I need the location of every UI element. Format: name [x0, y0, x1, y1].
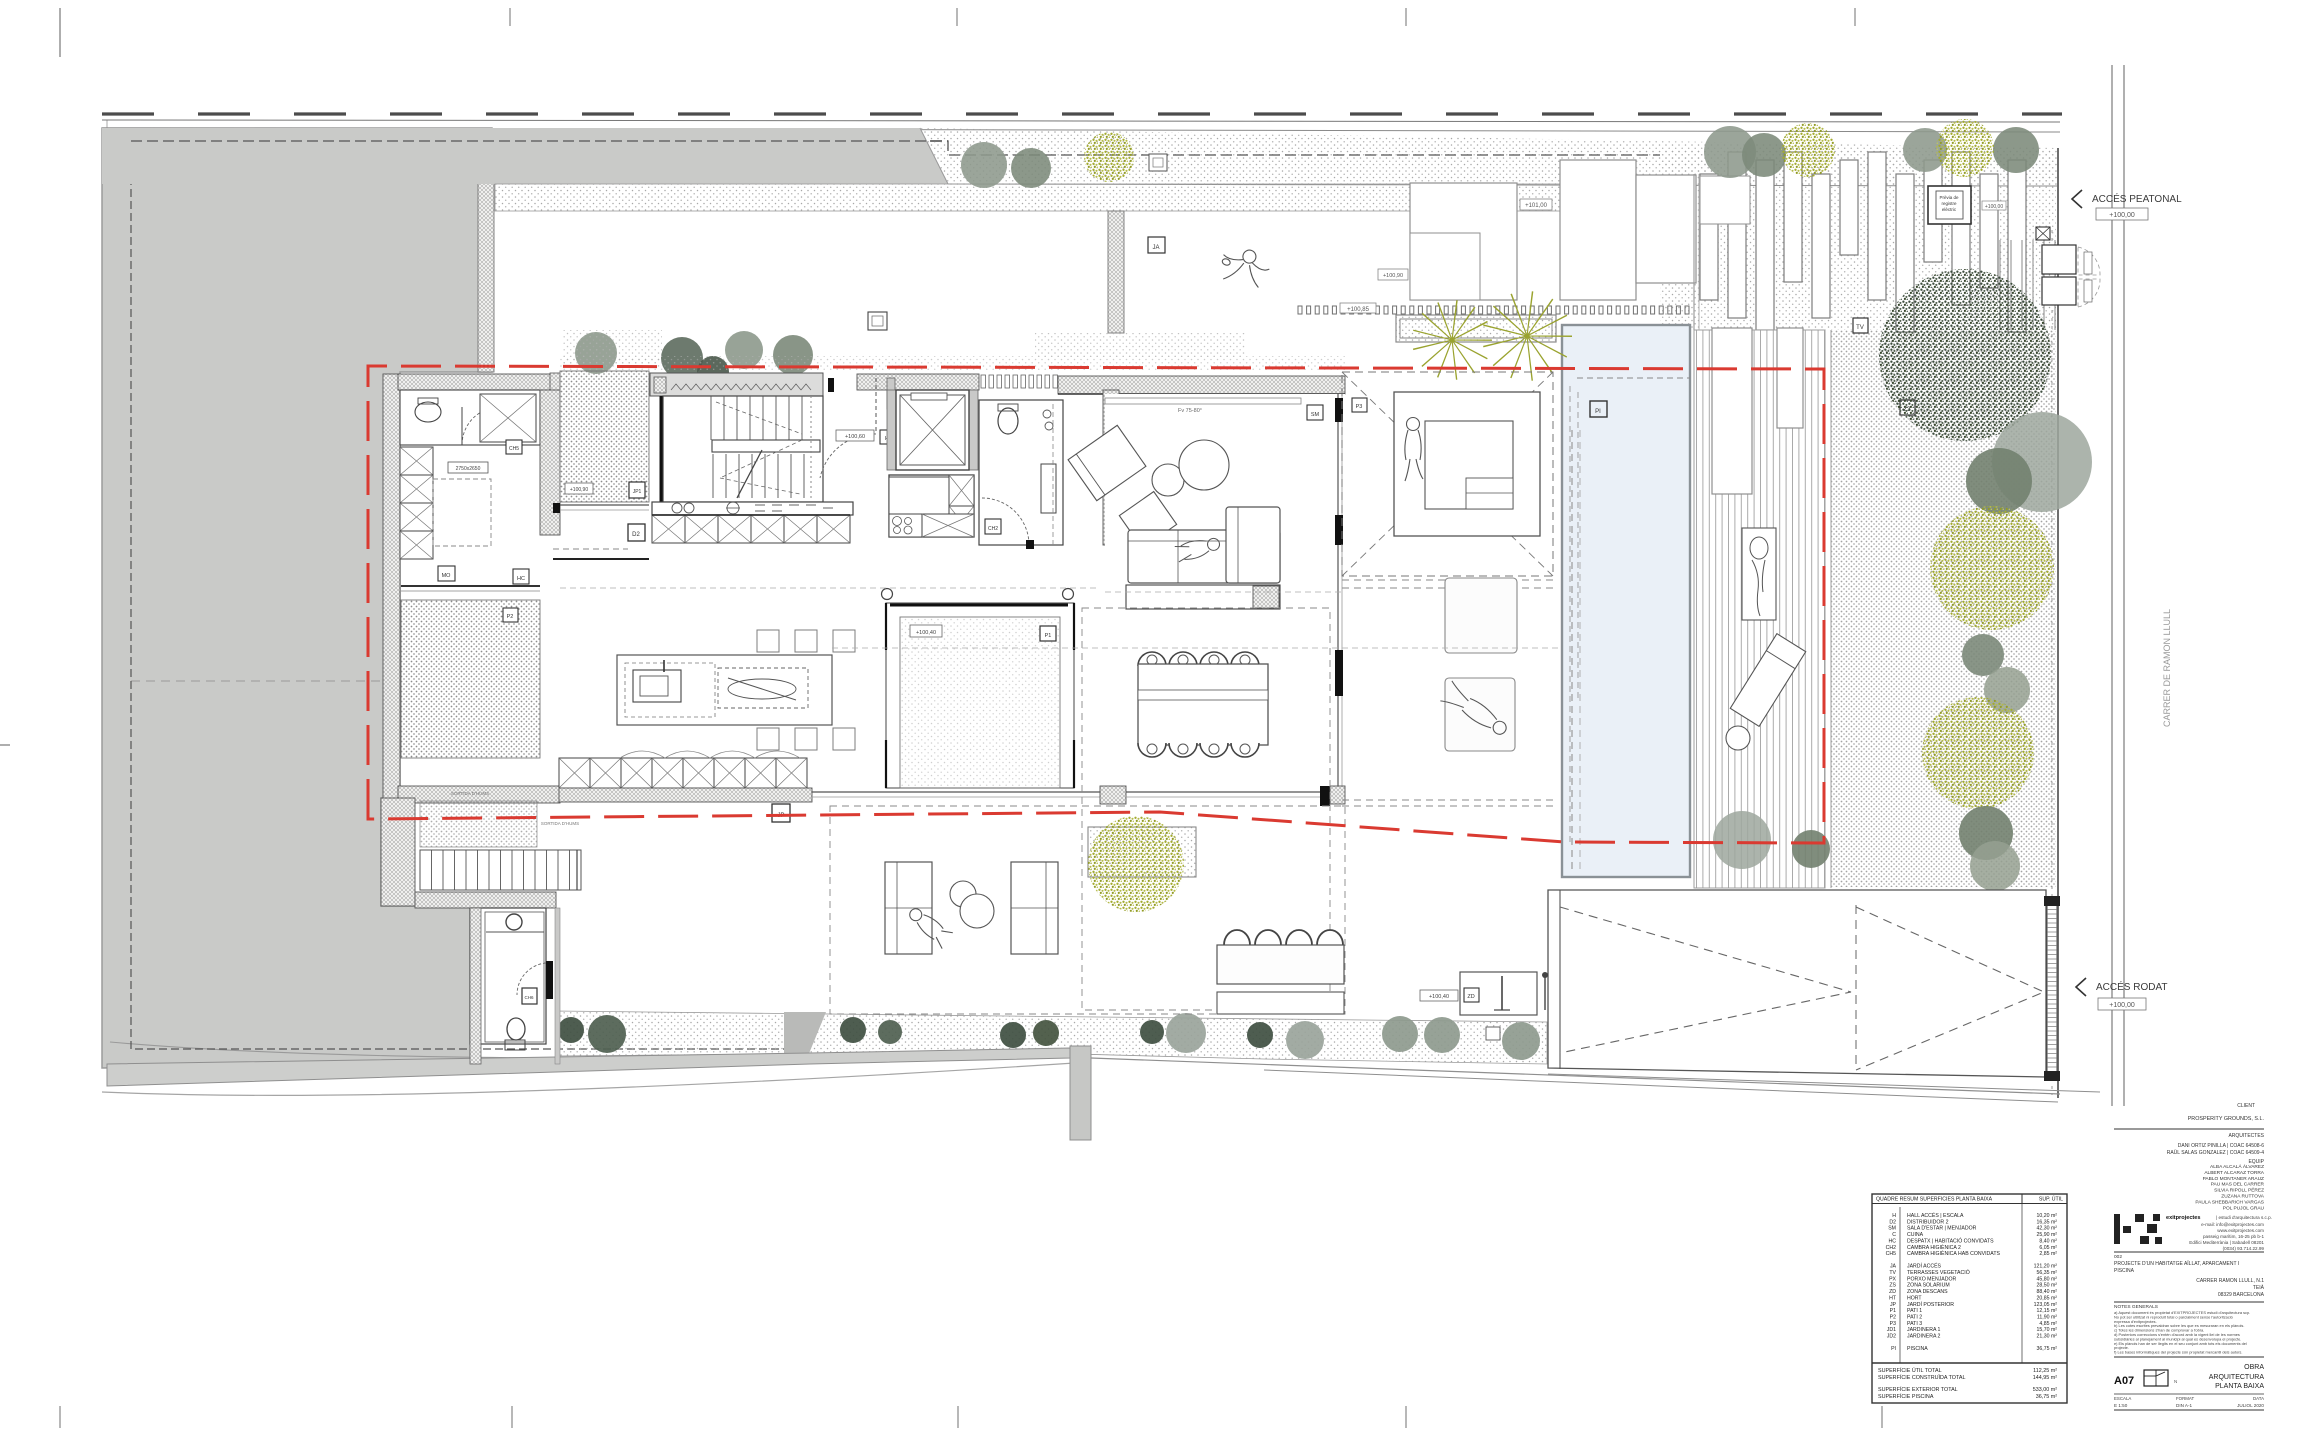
svg-text:+100,90: +100,90 [1383, 273, 1403, 279]
svg-text:ZD: ZD [1467, 994, 1474, 1000]
svg-text:PAU MAS DEL CARRER: PAU MAS DEL CARRER [2211, 1182, 2265, 1188]
svg-text:CH2: CH2 [988, 526, 998, 532]
svg-text:PISCINA: PISCINA [1907, 1346, 1928, 1352]
svg-text:DANI ORTIZ PINILLA | COAC 6450: DANI ORTIZ PINILLA | COAC 64508-6 [2178, 1143, 2264, 1149]
svg-text:OBRA: OBRA [2244, 1364, 2264, 1371]
svg-text:8,40 m²: 8,40 m² [2039, 1238, 2057, 1244]
svg-text:144,95 m²: 144,95 m² [2033, 1375, 2057, 1381]
svg-text:Fv 75-80°: Fv 75-80° [1178, 408, 1202, 414]
svg-text:42,30 m²: 42,30 m² [2037, 1226, 2058, 1232]
svg-text:ALBA ALCALÁ ÁLVAREZ: ALBA ALCALÁ ÁLVAREZ [2210, 1163, 2264, 1170]
svg-text:+101,00: +101,00 [1525, 203, 1548, 209]
svg-text:88,40 m²: 88,40 m² [2037, 1289, 2058, 1295]
svg-text:JARDÍ POSTERIOR: JARDÍ POSTERIOR [1907, 1301, 1954, 1308]
svg-text:H: H [1892, 1213, 1896, 1219]
svg-text:15,70 m²: 15,70 m² [2037, 1327, 2058, 1333]
svg-text:10,20 m²: 10,20 m² [2037, 1213, 2058, 1219]
svg-text:SILVIA RIPOLL PÉREZ: SILVIA RIPOLL PÉREZ [2214, 1187, 2264, 1194]
svg-text:ALBERT ALCARAZ TORRA: ALBERT ALCARAZ TORRA [2204, 1170, 2264, 1176]
svg-text:PATI 1: PATI 1 [1907, 1308, 1922, 1314]
svg-text:ARQUITECTES: ARQUITECTES [2228, 1133, 2264, 1139]
svg-text:PX: PX [1889, 1276, 1896, 1282]
svg-text:| estudi d'arquitectura s.c.p.: | estudi d'arquitectura s.c.p. [2216, 1215, 2272, 1220]
svg-text:6,05 m²: 6,05 m² [2039, 1245, 2057, 1251]
svg-text:(0034) 93.714.22.99: (0034) 93.714.22.99 [2223, 1246, 2265, 1251]
svg-text:+100,00: +100,00 [2109, 1002, 2135, 1009]
svg-text:D2: D2 [632, 532, 640, 538]
svg-text:FORMAT: FORMAT [2176, 1396, 2195, 1401]
svg-text:Prèvia de: Prèvia de [1939, 195, 1959, 200]
svg-text:+100,60: +100,60 [845, 434, 865, 440]
svg-text:ESCALA: ESCALA [2114, 1396, 2131, 1401]
svg-text:TERRASSES VEGETACIÓ: TERRASSES VEGETACIÓ [1907, 1269, 1970, 1276]
svg-text:P3: P3 [1890, 1321, 1896, 1327]
svg-text:CAMBRA HIGIÈNICA 2: CAMBRA HIGIÈNICA 2 [1907, 1244, 1961, 1251]
svg-text:JARDINERA 2: JARDINERA 2 [1907, 1334, 1941, 1340]
svg-text:ZONA SOLARIUM: ZONA SOLARIUM [1907, 1283, 1950, 1289]
svg-text:PROSPERITY GROUNDS, S.L.: PROSPERITY GROUNDS, S.L. [2188, 1116, 2264, 1122]
svg-text:POL PUJOL GRAU: POL PUJOL GRAU [2223, 1205, 2265, 1211]
svg-text:A07: A07 [2114, 1375, 2134, 1387]
svg-text:D2: D2 [1889, 1219, 1896, 1225]
svg-text:PORXO MENJADOR: PORXO MENJADOR [1907, 1276, 1957, 1282]
svg-text:MO: MO [442, 573, 452, 579]
svg-text:P1: P1 [1045, 633, 1052, 639]
svg-text:SUPERFÍCIE CONSTRUÏDA TOTAL: SUPERFÍCIE CONSTRUÏDA TOTAL [1878, 1374, 1965, 1381]
svg-text:SM: SM [1311, 412, 1320, 418]
svg-text:JP: JP [1890, 1302, 1897, 1308]
svg-text:45,80 m²: 45,80 m² [2037, 1276, 2058, 1282]
svg-text:PROJECTE D'UN HABITATGE AÏLLAT: PROJECTE D'UN HABITATGE AÏLLAT, APARCAME… [2114, 1260, 2239, 1267]
svg-text:PATI 3: PATI 3 [1907, 1321, 1922, 1327]
svg-text:ACCÉS PEATONAL: ACCÉS PEATONAL [2092, 192, 2182, 205]
svg-text:CAMBRA HIGIÈNICA HAB CONVIDATS: CAMBRA HIGIÈNICA HAB CONVIDATS [1907, 1250, 2001, 1257]
svg-text:+100,00: +100,00 [2109, 212, 2135, 219]
svg-text:TV: TV [1889, 1270, 1896, 1276]
svg-text:CARRER DE RAMON LLULL: CARRER DE RAMON LLULL [2162, 609, 2172, 727]
svg-text:PLANTA BAIXA: PLANTA BAIXA [2215, 1383, 2264, 1390]
svg-text:QUADRE RESUM SUPERFICIES PLANT: QUADRE RESUM SUPERFICIES PLANTA BAIXA [1876, 1197, 1993, 1203]
svg-text:P2: P2 [1890, 1314, 1896, 1320]
svg-text:12,15 m²: 12,15 m² [2037, 1308, 2058, 1314]
svg-text:C: C [1892, 1232, 1896, 1238]
svg-text:25,90 m²: 25,90 m² [2037, 1232, 2058, 1238]
svg-text:SALA D'ESTAR | MENJADOR: SALA D'ESTAR | MENJADOR [1907, 1226, 1977, 1232]
svg-text:HC: HC [517, 576, 525, 582]
svg-text:DESPATX | HABITACIÓ CONVIDATS: DESPATX | HABITACIÓ CONVIDATS [1907, 1237, 1994, 1244]
svg-text:+100,40: +100,40 [1429, 994, 1449, 1000]
svg-text:2,85 m²: 2,85 m² [2039, 1251, 2057, 1257]
svg-text:registre: registre [1941, 201, 1957, 206]
svg-text:HC: HC [1889, 1238, 1897, 1244]
svg-text:passeig marítim, 16-25 pb b-1: passeig marítim, 16-25 pb b-1 [2203, 1234, 2264, 1239]
svg-text:56,35 m²: 56,35 m² [2037, 1270, 2058, 1276]
svg-text:e) Els plànols han de ser lleg: e) Els plànols han de ser llegits en el … [2114, 1341, 2247, 1346]
svg-text:CARRER RAMON LLULL, N.1: CARRER RAMON LLULL, N.1 [2196, 1278, 2264, 1284]
svg-text:+100,90: +100,90 [570, 487, 588, 493]
svg-text:DATA: DATA [2253, 1396, 2264, 1401]
svg-text:PAULA SHEBBARICH VARGAS: PAULA SHEBBARICH VARGAS [2195, 1199, 2264, 1205]
svg-text:36,75 m²: 36,75 m² [2037, 1346, 2058, 1352]
svg-text:SORTIDA D'HUMS: SORTIDA D'HUMS [541, 821, 579, 826]
svg-text:CH5: CH5 [509, 446, 519, 452]
svg-text:121,20 m²: 121,20 m² [2034, 1264, 2058, 1270]
svg-text:RAÜL SALAS GONZALEZ | COAC 645: RAÜL SALAS GONZALEZ | COAC 64509-4 [2167, 1149, 2264, 1156]
svg-text:+100,00: +100,00 [1985, 204, 2003, 210]
svg-text:21,30 m²: 21,30 m² [2037, 1334, 2058, 1340]
svg-text:JP1: JP1 [633, 489, 642, 495]
svg-text:CUINA: CUINA [1907, 1232, 1924, 1238]
svg-text:ZS: ZS [1889, 1283, 1896, 1289]
svg-text:PISCINA: PISCINA [2114, 1268, 2135, 1274]
svg-text:P3: P3 [1356, 404, 1363, 410]
svg-text:08329 BARCELONA: 08329 BARCELONA [2218, 1292, 2265, 1298]
svg-text:DISTRIBUIDOR 2: DISTRIBUIDOR 2 [1907, 1219, 1949, 1225]
svg-text:CH5: CH5 [1886, 1251, 1896, 1257]
svg-text:ACCÉS RODAT: ACCÉS RODAT [2096, 980, 2168, 993]
svg-text:JARDÍ ACCÉS: JARDÍ ACCÉS [1907, 1263, 1942, 1270]
svg-text:P1: P1 [1890, 1308, 1896, 1314]
svg-text:20,85 m²: 20,85 m² [2037, 1295, 2058, 1301]
svg-text:f) Les bases informàtiques del: f) Les bases informàtiques del projecte … [2114, 1350, 2242, 1355]
svg-text:Edifici Mediterrània | Sabadel: Edifici Mediterrània | Sabadell 08201 [2189, 1240, 2264, 1245]
svg-text:CH6: CH6 [524, 995, 533, 1000]
svg-text:TEIÀ: TEIÀ [2253, 1284, 2265, 1291]
svg-text:11,90 m²: 11,90 m² [2037, 1314, 2057, 1320]
svg-text:HALL ACCÉS | ESCALA: HALL ACCÉS | ESCALA [1907, 1212, 1964, 1219]
svg-text:HT: HT [1889, 1295, 1897, 1301]
svg-text:PI: PI [1891, 1346, 1896, 1352]
svg-text:JA: JA [1152, 245, 1159, 251]
svg-text:123,05 m²: 123,05 m² [2034, 1302, 2058, 1308]
svg-text:112,25 m²: 112,25 m² [2033, 1368, 2057, 1374]
svg-text:SUPERFÍCIE EXTERIOR TOTAL: SUPERFÍCIE EXTERIOR TOTAL [1878, 1386, 1958, 1393]
svg-text:HORT: HORT [1907, 1295, 1922, 1301]
svg-text:CH2: CH2 [1886, 1245, 1896, 1251]
svg-text:JD1: JD1 [1887, 1327, 1896, 1333]
svg-text:SM: SM [1888, 1226, 1896, 1232]
svg-text:SORTIDA D'HUMS: SORTIDA D'HUMS [451, 791, 489, 796]
svg-text:SUP. ÚTIL: SUP. ÚTIL [2039, 1196, 2063, 1203]
svg-text:JULIOL 2020: JULIOL 2020 [2237, 1403, 2264, 1408]
svg-text:SUPERFÍCIE ÚTIL TOTAL: SUPERFÍCIE ÚTIL TOTAL [1878, 1367, 1942, 1374]
svg-text:JARDINERA 1: JARDINERA 1 [1907, 1327, 1941, 1333]
svg-text:36,75 m²: 36,75 m² [2036, 1394, 2057, 1400]
svg-text:4,85 m²: 4,85 m² [2039, 1321, 2057, 1327]
svg-text:N: N [2174, 1379, 2177, 1384]
svg-text:PATI 2: PATI 2 [1907, 1314, 1922, 1320]
svg-text:+100,40: +100,40 [916, 630, 936, 636]
svg-text:533,00 m²: 533,00 m² [2033, 1387, 2057, 1393]
svg-text:CLIENT: CLIENT [2237, 1103, 2255, 1109]
svg-text:SUPERFÍCIE PISCINA: SUPERFÍCIE PISCINA [1878, 1393, 1934, 1400]
svg-text:+100,85: +100,85 [1347, 307, 1370, 313]
svg-text:ZONA DESCANS: ZONA DESCANS [1907, 1289, 1948, 1295]
svg-text:JA: JA [1890, 1264, 1897, 1270]
svg-text:PI: PI [1595, 409, 1601, 415]
svg-text:www.exitprojectes.com: www.exitprojectes.com [2217, 1228, 2264, 1233]
svg-text:DIN A-1: DIN A-1 [2176, 1403, 2193, 1408]
svg-text:TV: TV [1856, 325, 1864, 331]
svg-text:ZUZANA RUTTOVA: ZUZANA RUTTOVA [2221, 1194, 2265, 1200]
svg-text:ARQUITECTURA: ARQUITECTURA [2209, 1374, 2265, 1381]
svg-text:PABLO MONTANER ARAUZ: PABLO MONTANER ARAUZ [2203, 1176, 2264, 1182]
svg-text:2750x2650: 2750x2650 [456, 466, 481, 472]
svg-text:e-mail: info@exitprojectes.com: e-mail: info@exitprojectes.com [2201, 1222, 2264, 1227]
svg-text:JD2: JD2 [1887, 1334, 1896, 1340]
svg-text:E 1:50: E 1:50 [2114, 1403, 2128, 1408]
svg-text:ZD: ZD [1889, 1289, 1896, 1295]
svg-text:28,50 m²: 28,50 m² [2037, 1283, 2058, 1289]
svg-text:elèctric: elèctric [1942, 207, 1957, 212]
svg-text:P2: P2 [507, 614, 514, 620]
svg-text:002: 002 [2114, 1254, 2122, 1260]
svg-text:16,35 m²: 16,35 m² [2037, 1219, 2058, 1225]
svg-text:exitprojectes: exitprojectes [2166, 1215, 2201, 1221]
